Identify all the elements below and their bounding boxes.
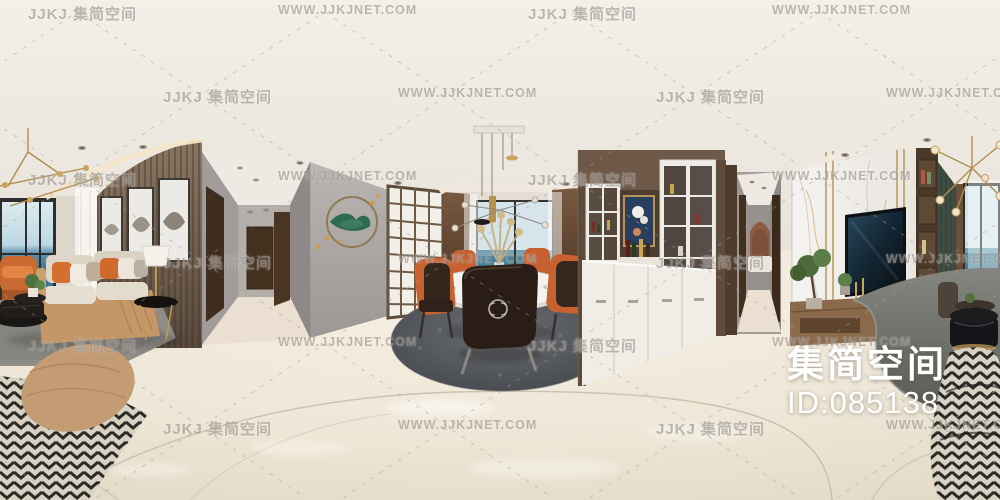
hall-door-end — [247, 227, 273, 289]
alcove-artwork — [624, 196, 654, 246]
brand-name-overlay: 集简空间 — [787, 346, 947, 385]
image-id-overlay: 集简空间 ID:085138 — [787, 346, 947, 419]
panorama-image: JJKJ 集简空间WWW.JJKJNET.COMJJKJ 集简空间WWW.JJK… — [0, 0, 1000, 500]
hall-door-left — [206, 186, 224, 322]
glass-cabinet-left — [586, 184, 620, 264]
hall-panel-wood — [274, 212, 290, 306]
drum-side-table — [950, 308, 998, 352]
gray-wall — [310, 162, 388, 338]
cabinet-alcove — [618, 190, 662, 265]
bedroom-glimpse — [748, 222, 772, 272]
hallway-right — [725, 165, 781, 335]
dining-chair-near — [458, 264, 542, 374]
hall2-door-left — [739, 195, 746, 317]
interior-panorama-scene — [0, 0, 1000, 500]
image-id-text: ID:085138 — [787, 387, 947, 420]
